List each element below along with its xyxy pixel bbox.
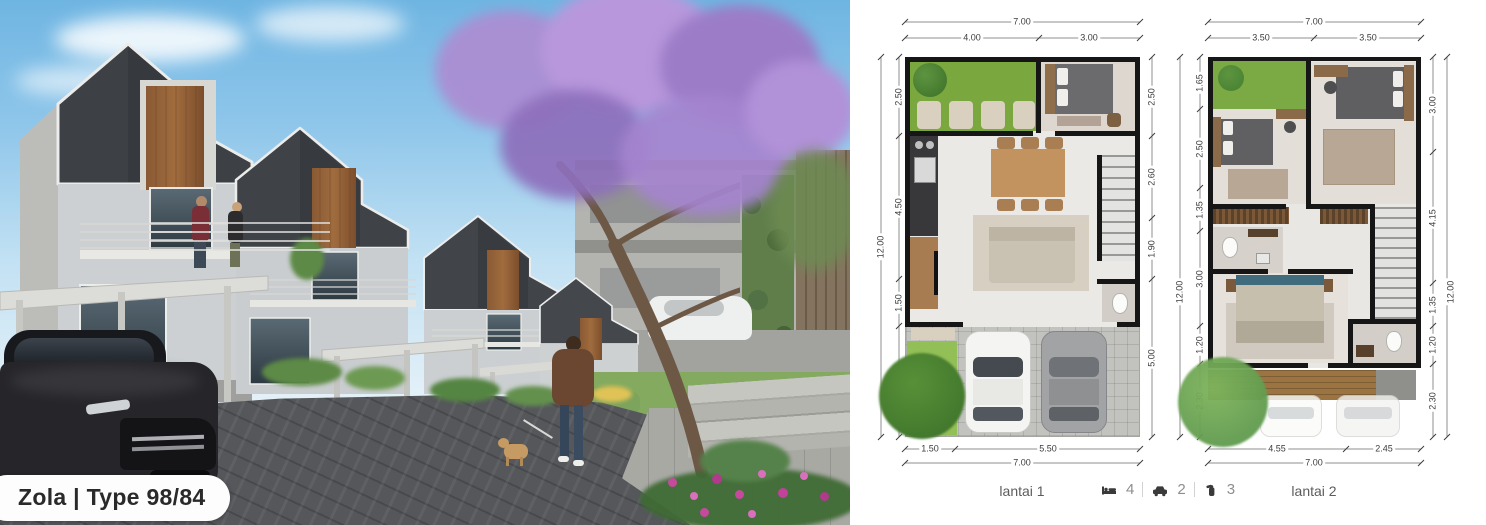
wall xyxy=(1055,131,1140,136)
stove-burner xyxy=(915,141,923,149)
divider xyxy=(1194,482,1195,497)
dim-label: 3.50 xyxy=(1357,34,1379,43)
wall xyxy=(1208,57,1213,368)
bedroom-count: 4 xyxy=(1126,481,1134,498)
brochure-canvas: Zola | Type 98/84 7.00 4.00 3.00 12.00 2… xyxy=(0,0,1486,525)
staircase xyxy=(1102,155,1135,261)
sink xyxy=(1256,253,1270,264)
dim-label: 7.00 xyxy=(1303,459,1325,468)
pedestrian-shoe xyxy=(573,460,584,466)
wall xyxy=(1348,324,1353,364)
dim-label: 3.00 xyxy=(1196,268,1205,290)
dim-label: 1.20 xyxy=(1196,334,1205,356)
wardrobe xyxy=(1213,207,1289,224)
toilet xyxy=(1386,331,1402,352)
jacaranda-canopy xyxy=(745,60,850,160)
pedestrian-shoe xyxy=(558,456,569,462)
wall xyxy=(1288,269,1353,274)
stepping-stone xyxy=(1013,101,1035,129)
car-gray-roof xyxy=(1049,379,1099,405)
bathroom-vanity xyxy=(1248,229,1278,237)
shower-icon xyxy=(1203,482,1219,498)
wall xyxy=(1208,204,1286,209)
dog-leg xyxy=(506,457,509,466)
dining-table xyxy=(991,149,1065,197)
parked-car-hood-highlight xyxy=(10,366,200,396)
desk-chair xyxy=(1284,121,1296,133)
dining-chair xyxy=(1045,137,1063,149)
project-badge: Zola | Type 98/84 xyxy=(0,475,230,521)
dim-label: 12.00 xyxy=(1176,279,1185,306)
oven xyxy=(914,157,936,183)
car-icon xyxy=(1151,482,1169,498)
car-gray-rear-glass xyxy=(1049,407,1099,421)
desk xyxy=(1276,109,1306,119)
yard-tree xyxy=(1178,357,1268,447)
car-white-roof xyxy=(973,379,1023,405)
rug xyxy=(1323,129,1395,185)
wall xyxy=(905,131,1033,136)
dim-label: 5.00 xyxy=(1148,347,1157,369)
floorplan-lantai1-body xyxy=(905,57,1140,437)
pillow xyxy=(1223,121,1233,135)
dim-label: 4.50 xyxy=(895,196,904,218)
dim-label: 3.00 xyxy=(1429,94,1438,116)
dining-chair xyxy=(997,199,1015,211)
flower xyxy=(758,470,766,478)
flower xyxy=(778,488,788,498)
chair xyxy=(1107,113,1121,127)
car-white-rear-glass xyxy=(973,407,1023,421)
plan-label-lantai1: lantai 1 xyxy=(999,483,1044,499)
stepping-stone xyxy=(949,101,973,129)
dim-label: 5.50 xyxy=(1037,445,1059,454)
pillow xyxy=(1223,141,1233,155)
toilet xyxy=(1222,237,1238,258)
kitchen-counter xyxy=(910,136,938,236)
bathroom-vanity xyxy=(1356,345,1374,357)
dim-label: 1.50 xyxy=(895,292,904,314)
wall xyxy=(1306,57,1311,204)
floorplans-panel: 7.00 4.00 3.00 12.00 2.50 4.50 1.50 2.50… xyxy=(850,0,1486,525)
flower xyxy=(820,492,829,501)
dog-head xyxy=(498,438,509,448)
dim-label: 12.00 xyxy=(1447,279,1456,306)
unit-stats: 4 2 3 xyxy=(1100,481,1235,498)
exterior-render: Zola | Type 98/84 xyxy=(0,0,850,525)
dim-label: 4.00 xyxy=(961,34,983,43)
television xyxy=(934,251,938,295)
dim-label: 12.00 xyxy=(877,234,886,261)
wall xyxy=(905,57,910,327)
flower xyxy=(735,490,744,499)
wall xyxy=(1348,319,1416,324)
floorplan-lantai2: 7.00 3.50 3.50 1.65 2.50 1.35 3.00 1.20 … xyxy=(1208,57,1421,437)
wall xyxy=(1135,57,1140,327)
pillow xyxy=(1057,68,1068,85)
stepping-stone xyxy=(917,101,941,129)
pillow xyxy=(1057,89,1068,106)
wall xyxy=(1416,57,1421,368)
vine-foliage xyxy=(770,150,850,270)
dim-label: 2.45 xyxy=(1373,445,1395,454)
dim-label: 1.90 xyxy=(1148,238,1157,260)
wall xyxy=(1328,363,1421,368)
shrub xyxy=(262,358,342,386)
project-badge-label: Zola | Type 98/84 xyxy=(18,484,206,510)
master-bed-headboard xyxy=(1236,275,1324,285)
balcony-railing xyxy=(150,222,330,256)
wall xyxy=(1208,57,1421,61)
dim-label: 2.30 xyxy=(1429,390,1438,412)
desk-chair xyxy=(1324,81,1337,94)
dim-label: 2.50 xyxy=(1148,86,1157,108)
dim-label: 2.60 xyxy=(1148,166,1157,188)
garden-bush xyxy=(913,63,947,97)
garden-bush xyxy=(1218,65,1244,91)
sofa-back xyxy=(989,227,1075,241)
car-gray-windshield xyxy=(1049,357,1099,377)
dim-label: 1.20 xyxy=(1429,334,1438,356)
dining-chair xyxy=(1021,199,1039,211)
wall xyxy=(1036,57,1041,133)
dining-chair xyxy=(1021,137,1039,149)
dog-leg xyxy=(520,457,523,466)
pedestrian-leg xyxy=(574,405,583,461)
dim-label: 4.55 xyxy=(1266,445,1288,454)
bed-headboard xyxy=(1045,64,1055,114)
bathroom-area xyxy=(1353,324,1416,364)
stove-burner xyxy=(926,141,934,149)
flower xyxy=(700,508,709,517)
dim-label: 1.35 xyxy=(1429,294,1438,316)
dim-label: 2.50 xyxy=(895,86,904,108)
flower xyxy=(800,472,808,480)
wardrobe xyxy=(1320,207,1368,224)
pedestrian-jacket xyxy=(552,349,594,407)
car-white-windshield xyxy=(973,357,1023,377)
rug xyxy=(1228,169,1288,199)
divider xyxy=(1142,482,1143,497)
yard-tree xyxy=(879,353,965,439)
toilet xyxy=(1112,293,1128,314)
dim-label: 7.00 xyxy=(1011,459,1033,468)
dim-label: 4.15 xyxy=(1429,207,1438,229)
wall xyxy=(1097,155,1102,261)
dining-chair xyxy=(997,137,1015,149)
dim-label: 7.00 xyxy=(1303,18,1325,27)
dim-label: 1.65 xyxy=(1196,72,1205,94)
flower xyxy=(712,474,722,484)
rug xyxy=(1057,116,1101,126)
pedestrian-leg xyxy=(560,405,569,457)
wall xyxy=(1208,269,1268,274)
ghost-car-windshield xyxy=(1268,407,1314,419)
bathroom-count: 3 xyxy=(1227,481,1235,498)
carport-count: 2 xyxy=(1177,481,1185,498)
flower xyxy=(668,478,677,487)
dim-label: 7.00 xyxy=(1011,18,1033,27)
bed-headboard xyxy=(1404,65,1414,121)
stepping-stone xyxy=(981,101,1005,129)
bed-icon xyxy=(1100,482,1118,498)
floorplan-lantai1: 7.00 4.00 3.00 12.00 2.50 4.50 1.50 2.50… xyxy=(905,57,1140,437)
ghost-car-windshield xyxy=(1344,407,1392,419)
wall xyxy=(905,57,1140,62)
dim-label: 1.50 xyxy=(919,445,941,454)
dim-label: 1.35 xyxy=(1196,199,1205,221)
pillow xyxy=(1393,91,1403,107)
flower xyxy=(748,510,756,518)
master-bed-blanket xyxy=(1236,321,1324,343)
plan-label-lantai2: lantai 2 xyxy=(1291,483,1336,499)
wall xyxy=(1306,204,1374,209)
flower xyxy=(690,492,698,500)
dining-chair xyxy=(1045,199,1063,211)
shrub xyxy=(345,366,405,390)
front-path xyxy=(911,328,955,340)
dim-label: 2.50 xyxy=(1196,138,1205,160)
bed-headboard xyxy=(1213,117,1221,167)
dim-label: 3.50 xyxy=(1250,34,1272,43)
dim-label: 3.00 xyxy=(1078,34,1100,43)
desk xyxy=(1314,65,1348,77)
pillow xyxy=(1393,71,1403,87)
